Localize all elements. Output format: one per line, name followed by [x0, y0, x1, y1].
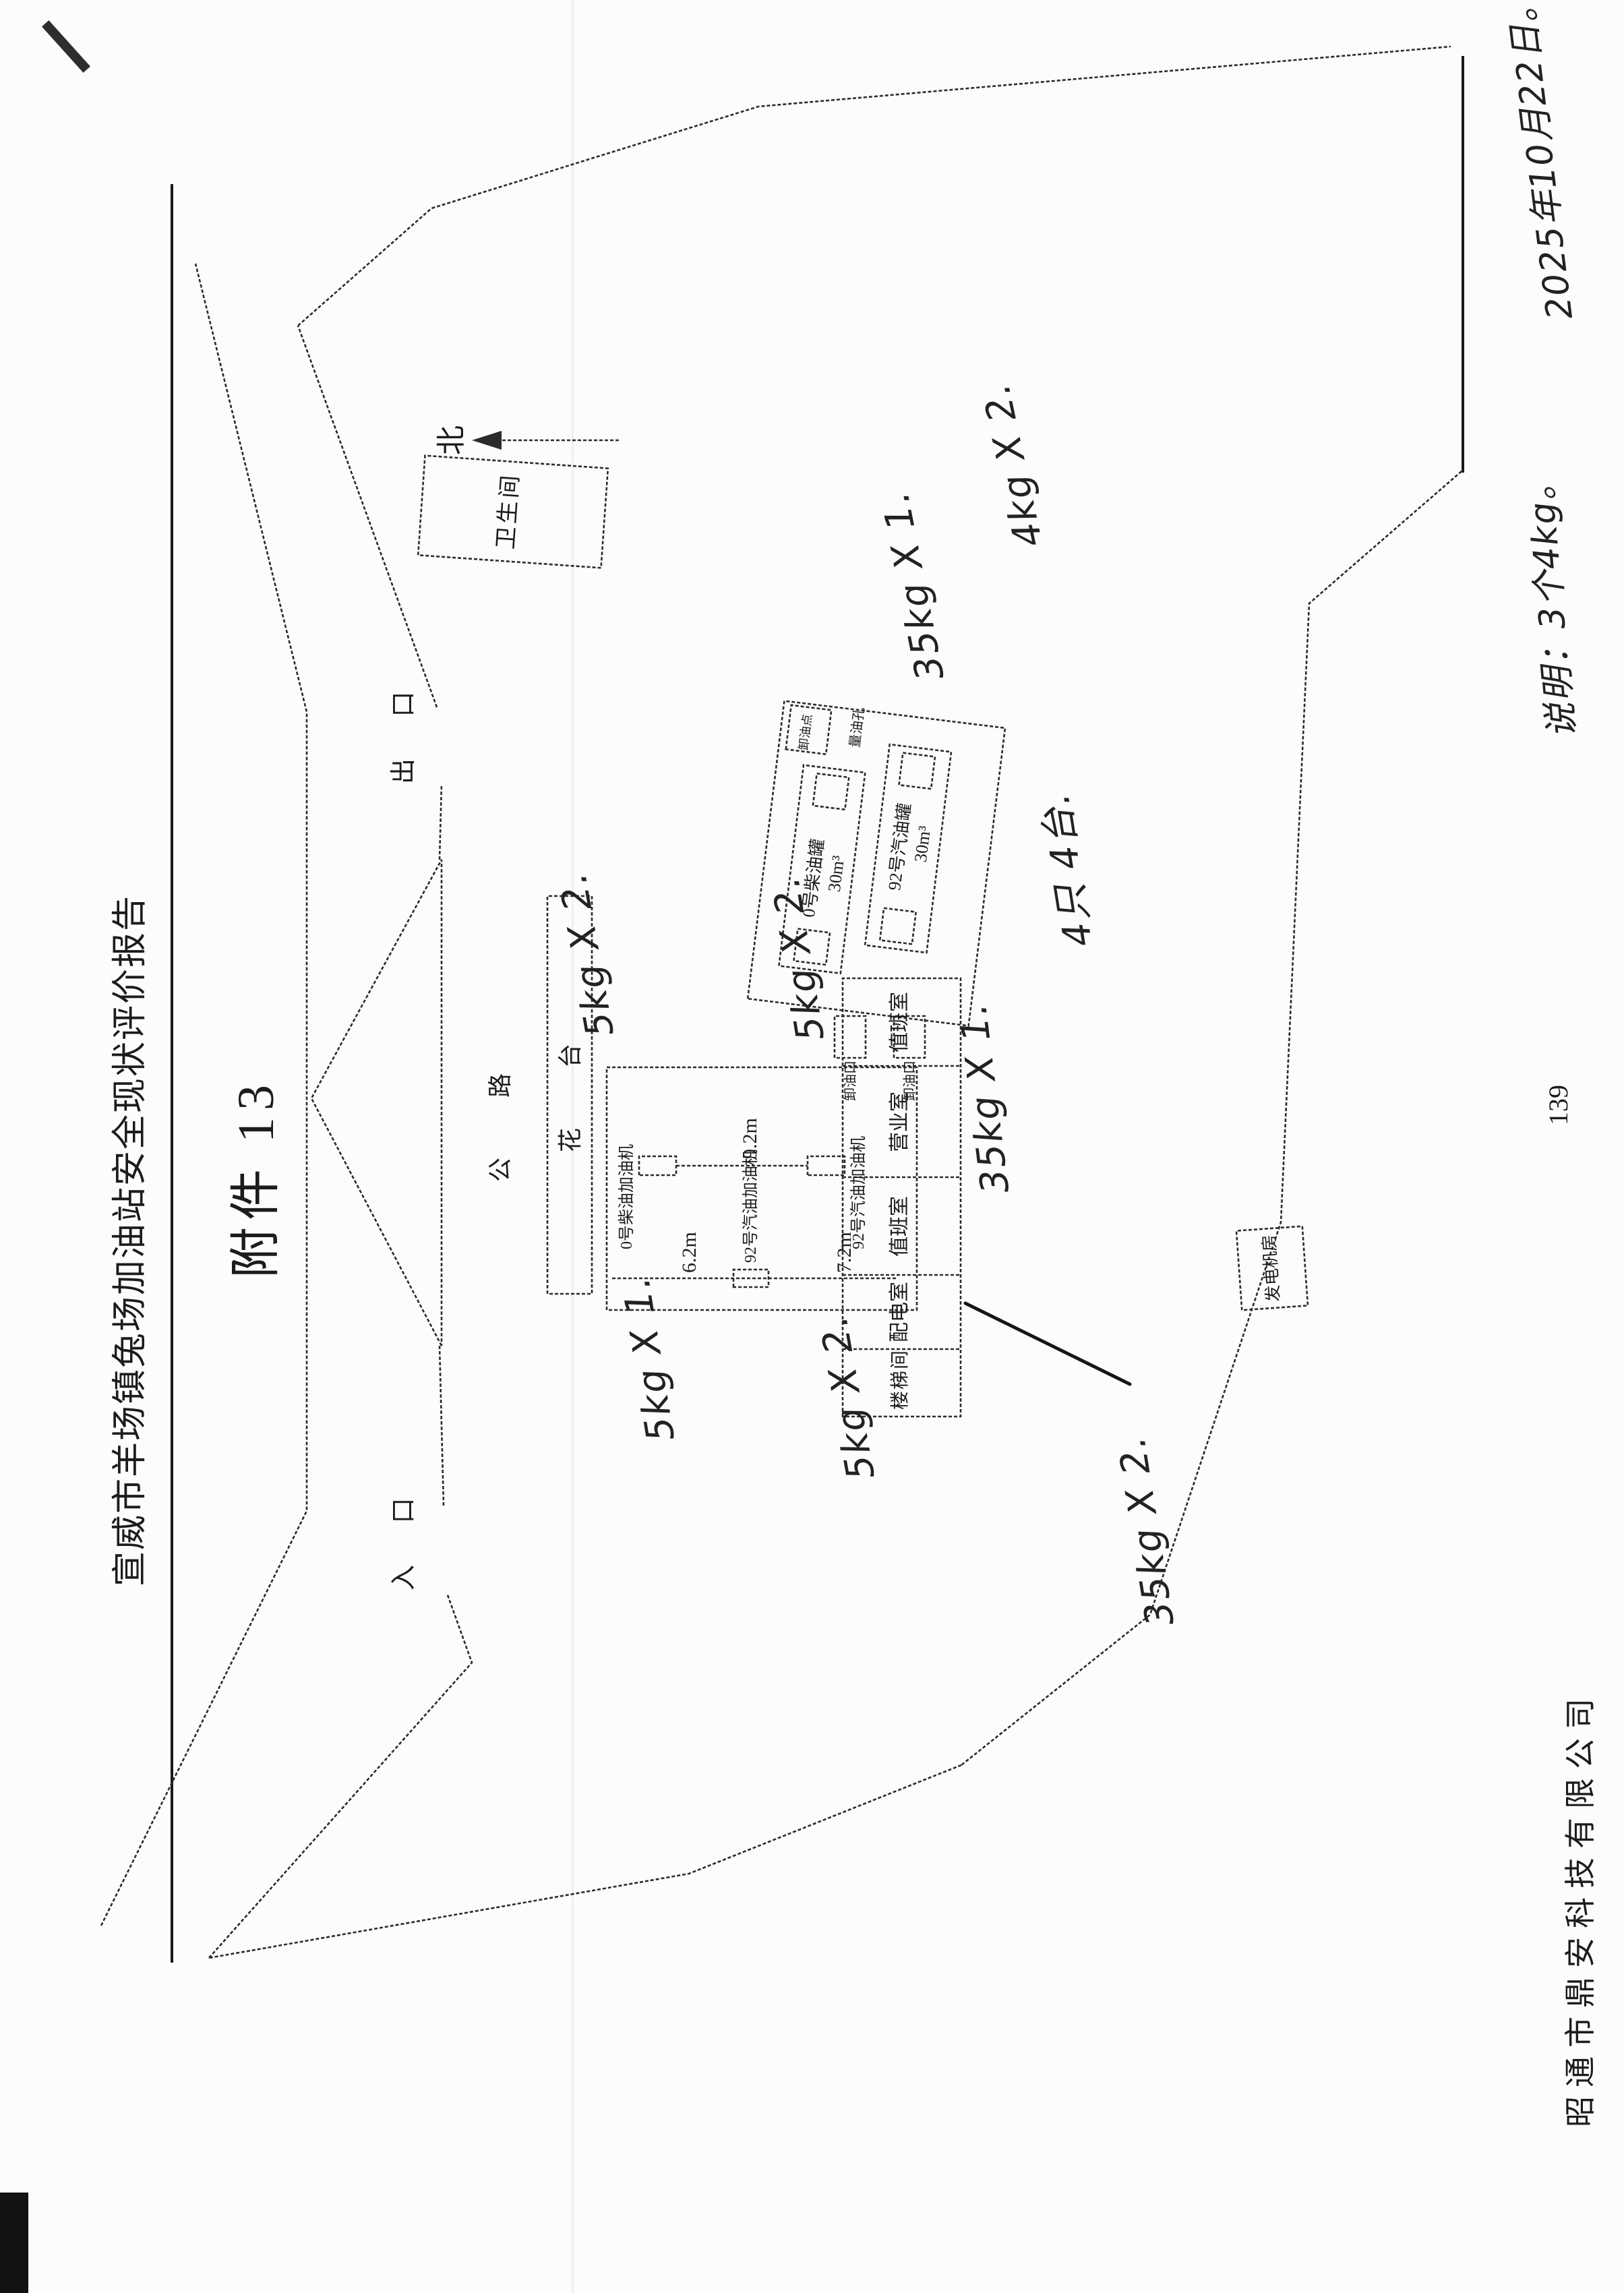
site-frontage-mid-left [440, 1346, 444, 1506]
entrance-label: 入 口 [391, 1480, 417, 1590]
unloading-port-box [835, 1016, 866, 1058]
scan-crease [572, 0, 574, 2293]
dimension-6-2m: 6.2m [680, 1232, 700, 1273]
road-label: 公 路 [488, 1046, 512, 1182]
toilet-label: 卫生间 [495, 472, 523, 550]
room-label-duty-1: 值班室 [890, 1196, 910, 1257]
annotation-leader-line [965, 1303, 1130, 1384]
dimension-7-2m: 7.2m [835, 1232, 855, 1273]
dispenser-island-gasoline-2 [808, 1156, 845, 1175]
site-frontage-mid-right [440, 784, 442, 860]
room-label-duty-2: 值班室 [890, 992, 910, 1052]
diesel-tank-volume: 30m³ [826, 855, 847, 893]
room-label-stairwell: 楼梯间 [891, 1349, 910, 1410]
dispenser-label-gasoline: 92号汽油加油机 [743, 1150, 759, 1263]
landscape-sheet: 宣威市羊场镇兔场加油站安全现状评价报告 附件 13 昭通市鼎安科技有限公司 13… [0, 0, 1624, 2293]
scanned-report-page: 宣威市羊场镇兔场加油站安全现状评价报告 附件 13 昭通市鼎安科技有限公司 13… [0, 0, 1624, 2293]
north-label: 北 [437, 425, 467, 455]
site-boundary-west [209, 1765, 961, 1958]
attachment-label: 附件 13 [231, 1078, 282, 1278]
exit-label: 出 口 [391, 674, 417, 784]
north-arrow-head [472, 431, 502, 450]
site-boundary-east [298, 47, 1451, 326]
report-title: 宣威市羊场镇兔场加油站安全现状评价报告 [113, 895, 148, 1586]
unloading-port-label: 卸油口 [903, 1061, 917, 1101]
page-number: 139 [1545, 1085, 1572, 1125]
dispenser-island-diesel [639, 1156, 676, 1175]
footer-company: 昭通市鼎安科技有限公司 [1565, 1690, 1596, 2127]
site-frontage-left [209, 1593, 472, 1958]
tank-well [813, 773, 849, 809]
tank-well [880, 908, 915, 944]
room-label-power: 配电室 [890, 1282, 910, 1342]
tank-well [899, 753, 934, 789]
driveway-island [311, 860, 442, 1346]
site-boundary-south [961, 471, 1462, 1765]
dispenser-label-diesel: 0号柴油加油机 [619, 1144, 635, 1249]
unloading-port-label: 卸油口 [844, 1061, 858, 1101]
scan-edge-artifact [0, 2193, 28, 2293]
dimension-9-2m: 9.2m [740, 1118, 760, 1159]
site-frontage-right [298, 326, 437, 707]
gasoline-tank-volume: 30m³ [912, 825, 934, 864]
